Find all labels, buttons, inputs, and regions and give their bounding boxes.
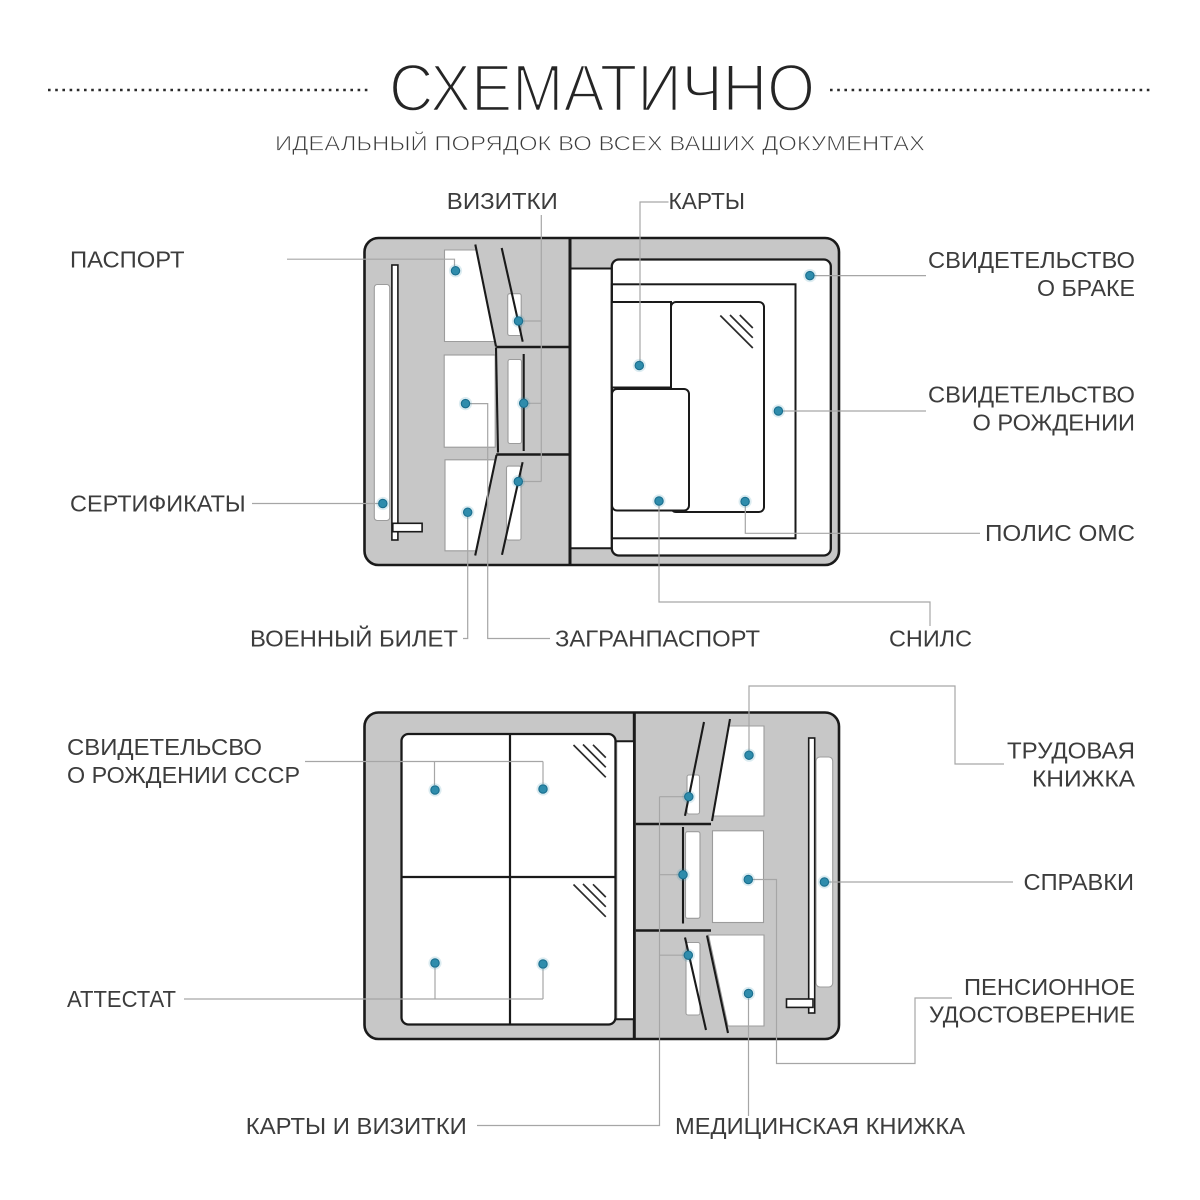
- svg-text:ВИЗИТКИ: ВИЗИТКИ: [447, 188, 558, 214]
- svg-text:СХЕМАТИЧНО: СХЕМАТИЧНО: [389, 52, 815, 126]
- svg-text:СВИДЕТЕЛЬСВО: СВИДЕТЕЛЬСВО: [67, 734, 262, 760]
- svg-text:ВОЕННЫЙ БИЛЕТ: ВОЕННЫЙ БИЛЕТ: [250, 625, 458, 652]
- svg-text:ИДЕАЛЬНЫЙ ПОРЯДОК ВО ВСЕХ ВАШИ: ИДЕАЛЬНЫЙ ПОРЯДОК ВО ВСЕХ ВАШИХ ДОКУМЕНТ…: [275, 131, 925, 156]
- svg-text:СВИДЕТЕЛЬСТВО: СВИДЕТЕЛЬСТВО: [928, 247, 1135, 273]
- svg-text:СПРАВКИ: СПРАВКИ: [1024, 869, 1135, 895]
- svg-text:ПОЛИС ОМС: ПОЛИС ОМС: [985, 520, 1135, 546]
- svg-text:МЕДИЦИНСКАЯ КНИЖКА: МЕДИЦИНСКАЯ КНИЖКА: [675, 1113, 966, 1139]
- svg-text:О БРАКЕ: О БРАКЕ: [1037, 275, 1135, 301]
- svg-text:КАРТЫ: КАРТЫ: [669, 188, 746, 214]
- svg-text:КАРТЫ И ВИЗИТКИ: КАРТЫ И ВИЗИТКИ: [246, 1113, 467, 1139]
- svg-text:СНИЛС: СНИЛС: [889, 626, 972, 652]
- svg-text:ЗАГРАНПАСПОРТ: ЗАГРАНПАСПОРТ: [555, 626, 760, 652]
- svg-text:ПАСПОРТ: ПАСПОРТ: [70, 247, 185, 273]
- svg-text:О РОЖДЕНИИ СССР: О РОЖДЕНИИ СССР: [67, 762, 300, 788]
- svg-text:ПЕНСИОННОЕ: ПЕНСИОННОЕ: [964, 974, 1135, 1000]
- svg-text:КНИЖКА: КНИЖКА: [1032, 766, 1136, 792]
- svg-text:О РОЖДЕНИИ: О РОЖДЕНИИ: [973, 410, 1136, 436]
- svg-text:СЕРТИФИКАТЫ: СЕРТИФИКАТЫ: [70, 491, 246, 517]
- svg-text:УДОСТОВЕРЕНИЕ: УДОСТОВЕРЕНИЕ: [929, 1002, 1135, 1028]
- svg-text:АТТЕСТАТ: АТТЕСТАТ: [67, 986, 176, 1012]
- svg-text:ТРУДОВАЯ: ТРУДОВАЯ: [1007, 738, 1135, 764]
- svg-text:СВИДЕТЕЛЬСТВО: СВИДЕТЕЛЬСТВО: [928, 382, 1135, 408]
